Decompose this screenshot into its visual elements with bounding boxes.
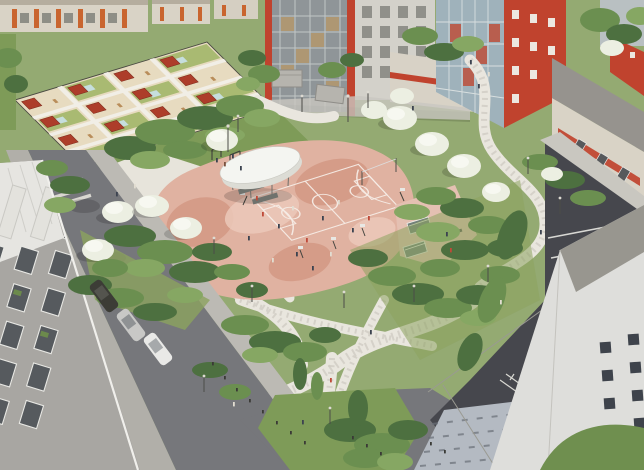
architectural-render [0,0,644,470]
render-canvas [0,0,644,470]
